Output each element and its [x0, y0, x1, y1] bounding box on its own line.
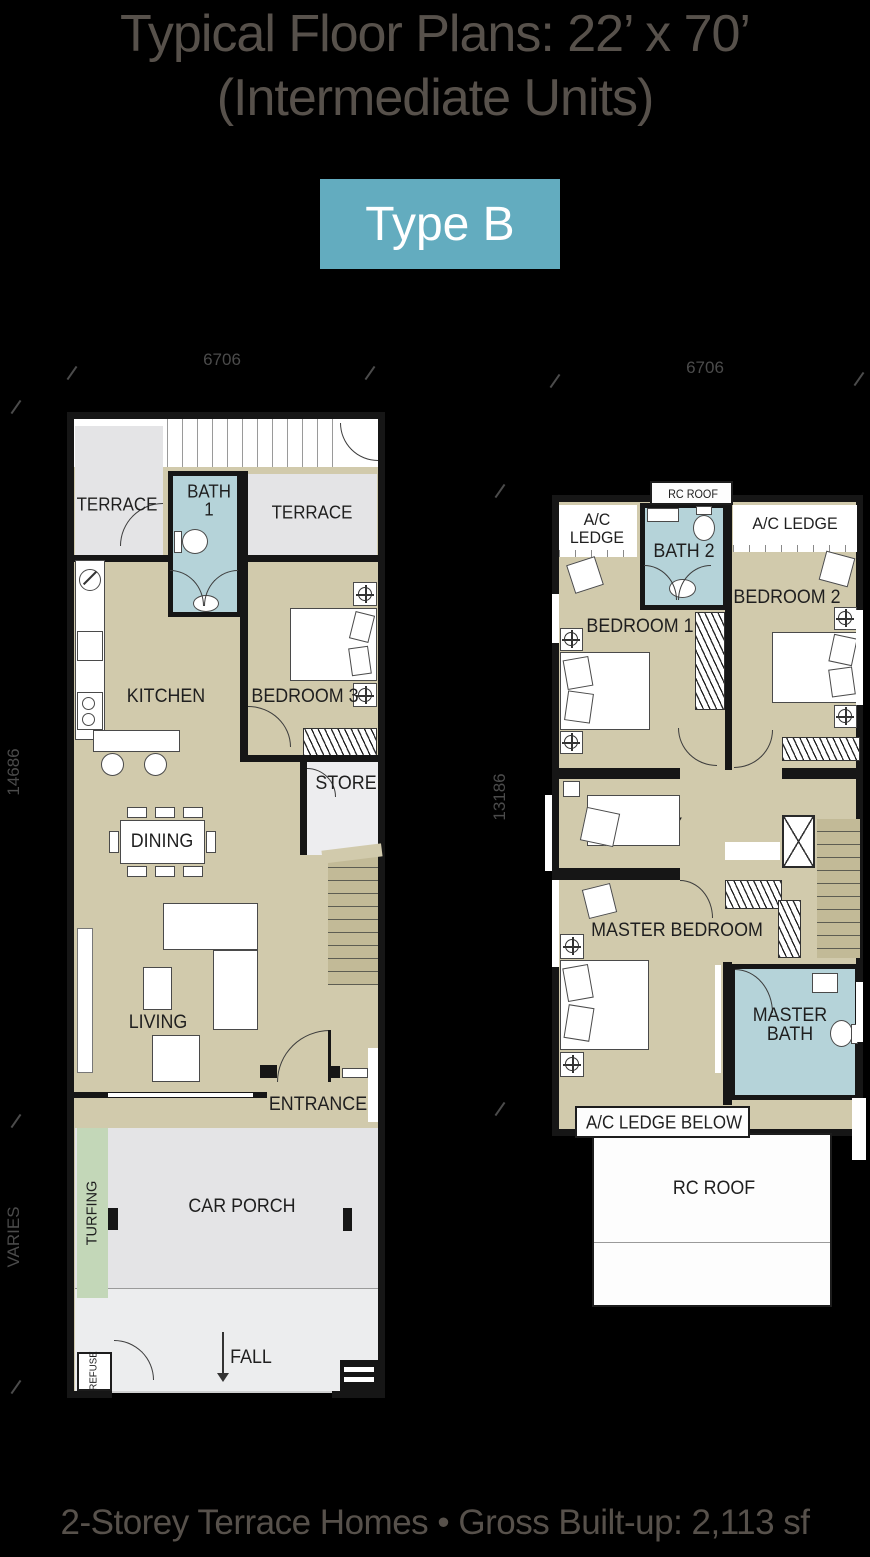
room-label-master-bath-line2: BATH — [767, 1024, 813, 1046]
chair-icon — [566, 556, 604, 594]
window — [856, 982, 863, 1042]
door-recess — [725, 842, 780, 860]
room-label-terrace-right: TERRACE — [272, 503, 353, 524]
staircase-icon — [817, 819, 860, 958]
coffee-table-icon — [143, 967, 172, 1010]
porch-opening — [112, 1391, 332, 1398]
room-label-car-porch: CAR PORCH — [188, 1196, 295, 1218]
window — [368, 1048, 378, 1122]
chair-icon — [819, 551, 856, 588]
wardrobe-icon — [725, 880, 782, 909]
gf-dim-top: 6706 — [203, 350, 241, 370]
rc-roof-divider — [594, 1242, 830, 1243]
ledge-stub — [852, 1098, 866, 1160]
tick — [550, 374, 561, 388]
wall — [260, 1065, 277, 1078]
downlight-icon — [358, 587, 372, 601]
stairs-icon — [167, 419, 333, 467]
chair-icon — [109, 831, 119, 853]
sofa-icon — [213, 950, 258, 1030]
toilet-icon — [182, 529, 208, 554]
room-label-bath1-line2: 1 — [204, 500, 213, 521]
kitchen-island-icon — [93, 730, 180, 752]
pillow-icon — [564, 690, 594, 723]
sliding-panel — [715, 965, 721, 1073]
chair-icon — [155, 866, 175, 877]
toilet-icon — [174, 531, 182, 553]
armchair-icon — [152, 1035, 200, 1082]
room-label-rc-roof-top: RC ROOF — [668, 489, 718, 501]
wardrobe-icon — [303, 728, 377, 758]
vanity-icon — [647, 508, 679, 522]
gate-icon — [344, 1377, 374, 1382]
downlight-icon — [838, 709, 852, 723]
stool-icon — [144, 753, 167, 776]
downlight-icon — [564, 735, 578, 749]
wardrobe-icon — [782, 737, 860, 761]
downlight-icon — [564, 632, 578, 646]
downlight-icon — [358, 688, 372, 702]
wall — [725, 728, 732, 770]
room-label-entrance: ENTRANCE — [269, 1094, 367, 1116]
downlight-icon — [838, 611, 852, 625]
floor-plan-page: Typical Floor Plans: 22’ x 70’ (Intermed… — [0, 0, 870, 1557]
ledge-stub — [545, 795, 552, 871]
staircase-icon — [328, 855, 378, 985]
wall — [108, 1208, 118, 1230]
shelf-icon — [563, 781, 580, 797]
door-arc — [277, 1030, 330, 1082]
toilet-icon — [693, 515, 715, 541]
room-label-turfing: TURFING — [84, 1181, 101, 1246]
pillow-icon — [828, 666, 856, 697]
room-label-refuse: REFUSE — [89, 1351, 100, 1390]
room-label-bedroom2: BEDROOM 2 — [733, 587, 840, 609]
window — [552, 880, 559, 967]
pillow-icon — [562, 964, 594, 1002]
window — [342, 1068, 368, 1078]
room-label-ac-ledge-left-line1: A/C — [584, 510, 611, 530]
window — [552, 594, 559, 643]
chair-icon — [155, 807, 175, 818]
window — [856, 610, 863, 705]
window — [733, 545, 857, 552]
burner-icon — [82, 697, 95, 710]
tick — [854, 372, 865, 386]
tick — [67, 366, 78, 380]
room-label-ac-ledge-right: A/C LEDGE — [752, 514, 837, 534]
pillow-icon — [348, 646, 372, 677]
rc-roof-box: RC ROOF — [592, 1133, 832, 1307]
fall-arrow — [222, 1332, 224, 1375]
pillow-icon — [563, 656, 594, 690]
wall — [300, 762, 307, 855]
chair-icon — [580, 807, 620, 847]
toilet-icon — [696, 506, 712, 515]
wall — [725, 502, 732, 730]
gate-icon — [344, 1367, 374, 1372]
wall — [240, 755, 378, 762]
burner-icon — [82, 713, 95, 726]
room-label-store: STORE — [315, 773, 376, 795]
wall — [240, 471, 248, 755]
room-label-bedroom1: BEDROOM 1 — [586, 616, 693, 638]
chair-icon — [183, 866, 203, 877]
room-label-living: LIVING — [129, 1012, 188, 1034]
room-label-ac-ledge-left-line2: LEDGE — [570, 528, 624, 548]
downlight-icon — [565, 1057, 579, 1071]
sofa-icon — [163, 903, 258, 950]
tick — [11, 400, 22, 414]
room-label-terrace-left: TERRACE — [77, 495, 158, 516]
first-floor-plan: A/C LEDGE A/C LEDGE BATH 2 BEDROOM 1 BED… — [552, 495, 863, 1136]
room-label-bedroom3: BEDROOM 3 — [251, 686, 358, 708]
window — [108, 1093, 253, 1097]
gf-dim-left: 14686 — [4, 748, 24, 795]
title-line-2: (Intermediate Units) — [0, 66, 870, 130]
title-line-1: Typical Floor Plans: 22’ x 70’ — [0, 2, 870, 66]
window — [559, 550, 637, 557]
ac-ledge-below-box: A/C LEDGE BELOW — [575, 1106, 750, 1138]
door-arc — [734, 730, 773, 768]
chair-icon — [582, 883, 617, 919]
downlight-icon — [565, 939, 579, 953]
door-arc — [678, 728, 717, 766]
room-label-kitchen: KITCHEN — [127, 686, 205, 708]
wall — [330, 1066, 340, 1078]
gf-dim-left-lower: VARIES — [4, 1206, 24, 1267]
sink-icon — [812, 973, 838, 993]
room-label-rc-roof: RC ROOF — [673, 1178, 755, 1200]
chair-icon — [127, 866, 147, 877]
wall — [559, 868, 680, 880]
room-label-dining: DINING — [131, 831, 194, 853]
room-label-ac-ledge-below: A/C LEDGE BELOW — [586, 1113, 742, 1134]
ff-dim-top: 6706 — [686, 358, 724, 378]
window — [77, 928, 93, 1073]
chair-icon — [127, 807, 147, 818]
pillow-icon — [564, 1004, 595, 1042]
chair-icon — [206, 831, 216, 853]
tick — [495, 1102, 506, 1116]
stool-icon — [101, 753, 124, 776]
ff-dim-left: 13186 — [490, 773, 510, 820]
chair-icon — [183, 807, 203, 818]
room-label-master-bedroom: MASTER BEDROOM — [591, 920, 763, 942]
tick — [11, 1380, 22, 1394]
gate-icon — [340, 1360, 378, 1391]
washer-icon — [79, 569, 101, 591]
kitchen-sink-icon — [77, 631, 103, 661]
toilet-icon — [830, 1020, 853, 1047]
room-label-fall: FALL — [230, 1347, 272, 1369]
tick — [11, 1114, 22, 1128]
caption: 2-Storey Terrace Homes • Gross Built-up:… — [0, 1503, 870, 1543]
room-label-bath2: BATH 2 — [653, 541, 714, 563]
wall — [343, 1208, 352, 1231]
wall — [782, 768, 857, 779]
fall-arrow — [217, 1373, 229, 1382]
wardrobe-icon — [778, 900, 801, 958]
rc-roof-top-box: RC ROOF — [650, 481, 733, 505]
tick — [495, 484, 506, 498]
wall — [559, 768, 680, 779]
wardrobe-icon — [695, 612, 725, 710]
tick — [365, 366, 376, 380]
door-arc — [680, 880, 713, 918]
type-badge: Type B — [320, 179, 560, 269]
door-arc — [248, 706, 291, 747]
ground-floor-plan: TERRACE TERRACE BATH 1 BEDROOM 3 STORE — [67, 412, 385, 1398]
shaft-icon — [782, 815, 815, 868]
page-title: Typical Floor Plans: 22’ x 70’ (Intermed… — [0, 2, 870, 130]
